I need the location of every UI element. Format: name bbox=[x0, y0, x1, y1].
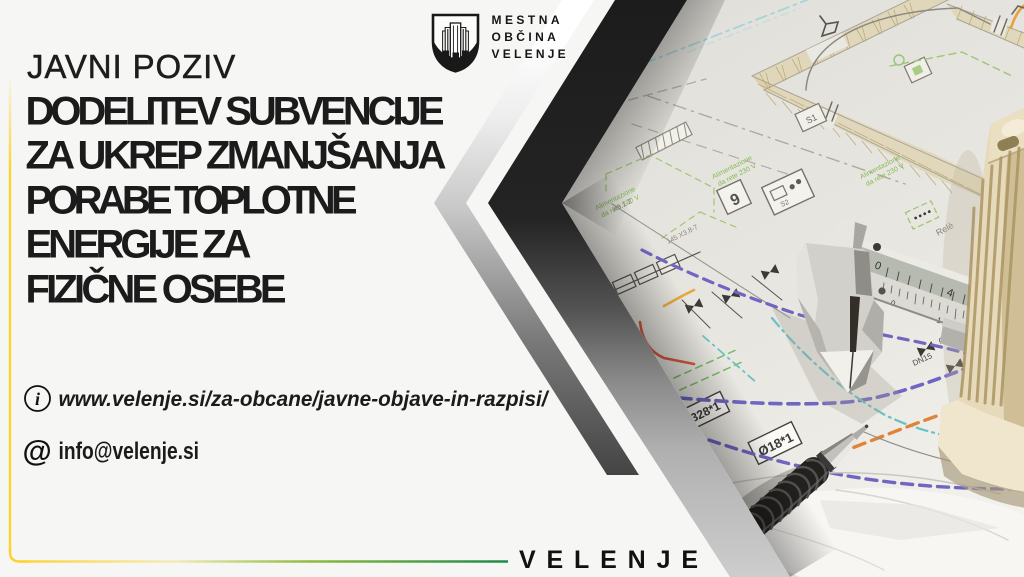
svg-text:ZA UKREP ZMANJŠANJA: ZA UKREP ZMANJŠANJA bbox=[26, 132, 447, 178]
svg-text:PORABE TOPLOTNE: PORABE TOPLOTNE bbox=[26, 179, 358, 223]
svg-text:www.velenje.si/za-obcane/javne: www.velenje.si/za-obcane/javne-objave-in… bbox=[59, 388, 550, 411]
svg-text:FIZIČNE OSEBE: FIZIČNE OSEBE bbox=[26, 266, 287, 312]
svg-text:i: i bbox=[35, 389, 40, 409]
svg-text:DODELITEV SUBVENCIJE: DODELITEV SUBVENCIJE bbox=[26, 90, 445, 134]
svg-text:info@velenje.si: info@velenje.si bbox=[59, 438, 200, 465]
svg-text:@: @ bbox=[23, 435, 52, 468]
svg-text:JAVNI POZIV: JAVNI POZIV bbox=[27, 48, 236, 85]
svg-text:ENERGIJE ZA: ENERGIJE ZA bbox=[26, 223, 252, 267]
